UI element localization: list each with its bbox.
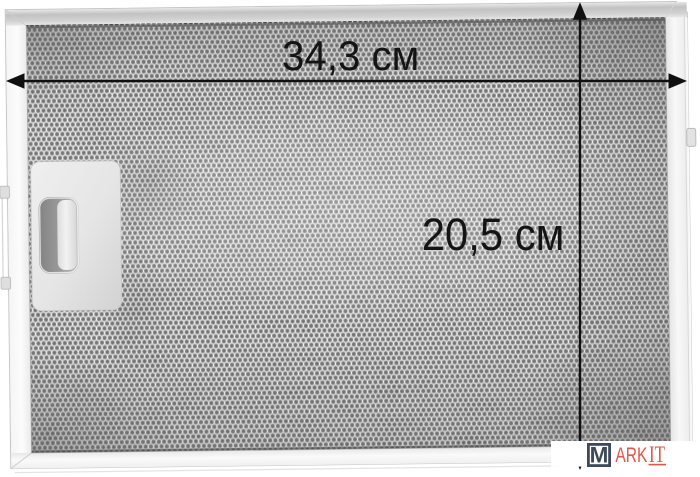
svg-text:20,5 см: 20,5 см	[422, 211, 565, 261]
svg-text:M: M	[590, 443, 609, 468]
svg-text:ARK: ARK	[615, 443, 647, 467]
svg-text:34,3 см: 34,3 см	[282, 32, 419, 79]
